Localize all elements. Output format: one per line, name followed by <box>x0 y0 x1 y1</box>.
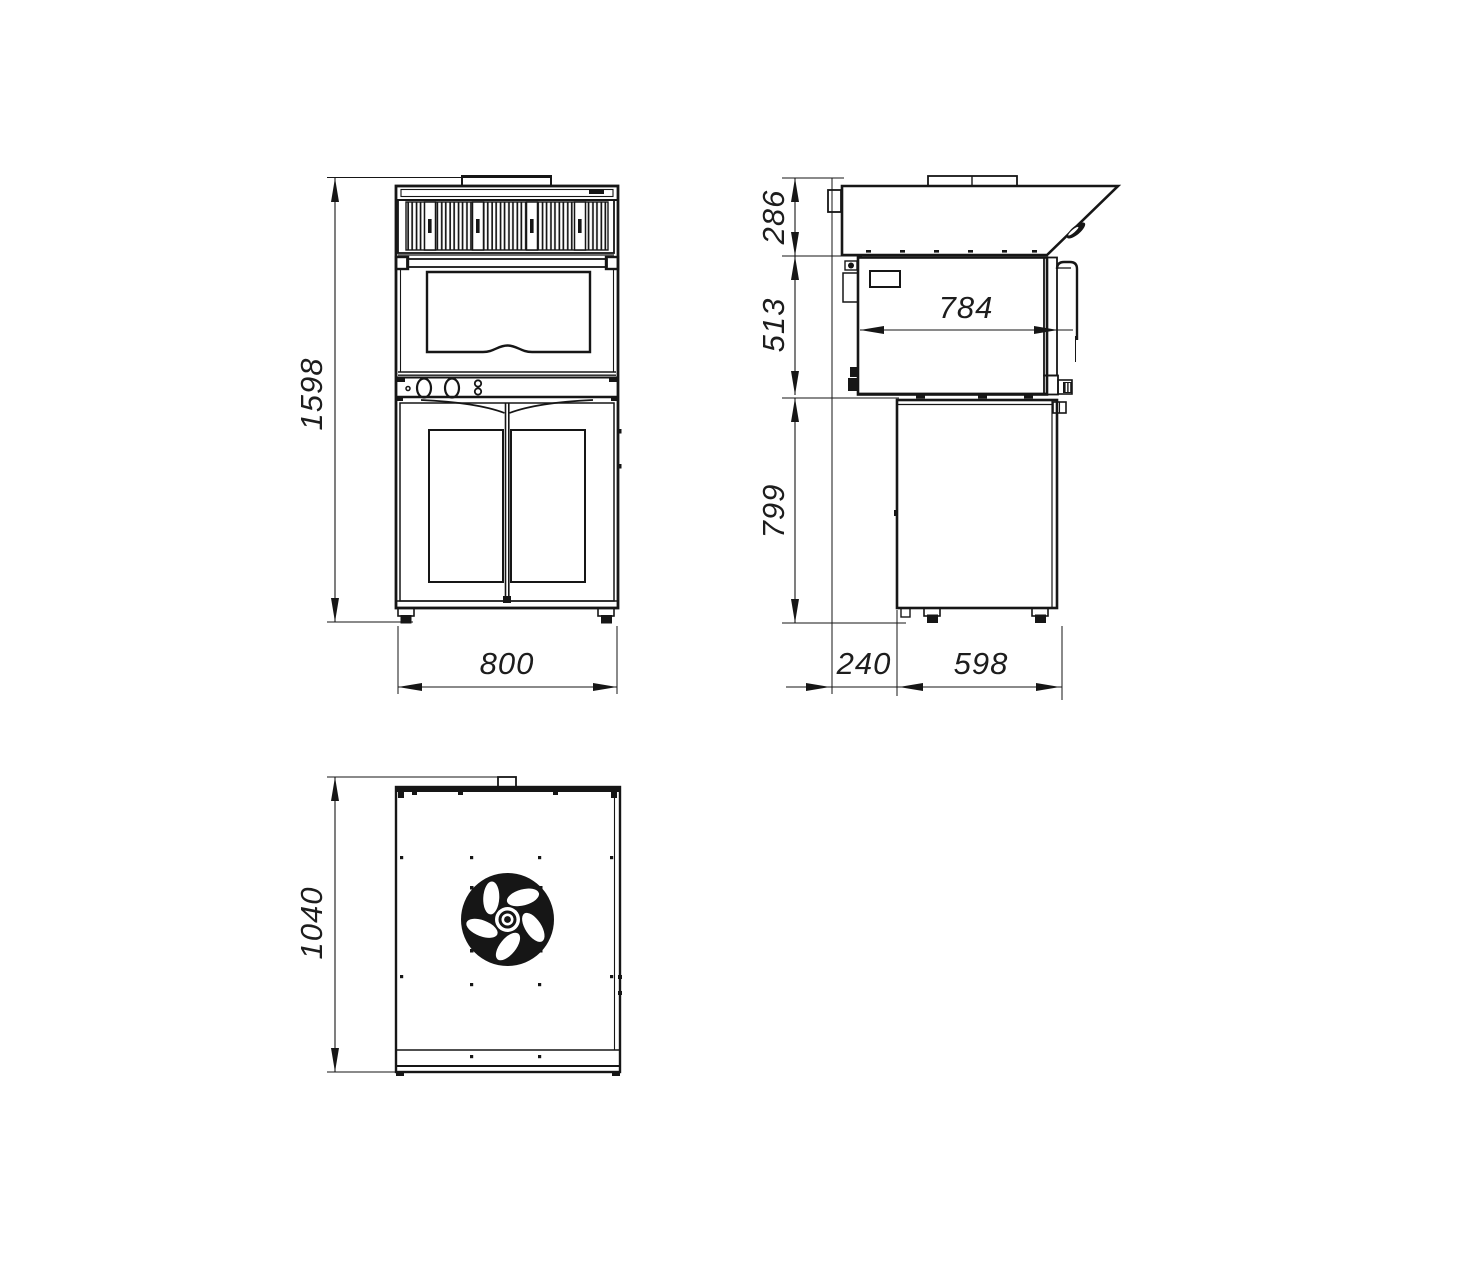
hood-latch <box>1064 220 1087 241</box>
top-depth-label: 1040 <box>294 887 329 960</box>
top-chimney-tab <box>498 777 516 787</box>
drawing-sheet: 1598 800 <box>0 0 1467 1284</box>
side-door-handle <box>1057 262 1077 340</box>
front-rail <box>396 255 618 269</box>
control-knob-2 <box>445 379 459 398</box>
hood-rear-bracket <box>828 190 841 212</box>
dim-oven-height: 513 <box>756 256 795 395</box>
front-grill <box>398 200 614 253</box>
side-view <box>828 176 1118 623</box>
oven-height-label: 513 <box>756 298 791 353</box>
grill-post <box>425 202 436 250</box>
front-oven-door <box>398 268 616 375</box>
hood-screw-ticks <box>866 250 1037 253</box>
dim-front-width: 800 <box>398 626 617 694</box>
front-width-label: 800 <box>480 646 535 681</box>
control-button-top <box>475 380 481 386</box>
back-offset-label: 240 <box>836 646 892 681</box>
hinge-tick <box>618 429 622 434</box>
top-view <box>396 777 622 1076</box>
side-base-cabinet <box>894 400 1066 623</box>
base-depth-label: 598 <box>954 646 1009 681</box>
grill-post <box>575 202 586 250</box>
oven-window <box>427 272 590 352</box>
hood-height-label: 286 <box>756 190 791 246</box>
dim-hood-height: 286 <box>756 178 795 256</box>
cabinet-door-right-panel <box>511 430 585 582</box>
hinge-tick <box>618 464 622 469</box>
front-control-panel <box>396 377 618 398</box>
oven-depth-label: 784 <box>939 290 994 325</box>
dim-base-height: 799 <box>756 398 795 623</box>
grill-post <box>527 202 538 250</box>
front-feet <box>398 608 614 624</box>
front-cabinet <box>396 397 622 603</box>
indicator-lamp <box>406 387 410 391</box>
control-knob-1 <box>417 379 431 398</box>
side-oven-body <box>843 258 1077 399</box>
side-hood <box>828 176 1118 255</box>
front-view <box>396 176 622 624</box>
rating-plate <box>870 271 900 287</box>
fan-icon <box>461 873 554 966</box>
side-rear-box <box>843 273 858 302</box>
front-height-label: 1598 <box>294 358 329 431</box>
base-height-label: 799 <box>756 484 791 539</box>
control-button-bottom <box>475 388 481 394</box>
cabinet-door-left-panel <box>429 430 503 582</box>
grill-post <box>473 202 484 250</box>
front-badge <box>589 190 604 195</box>
drawing-svg: 1598 800 <box>0 0 1467 1284</box>
